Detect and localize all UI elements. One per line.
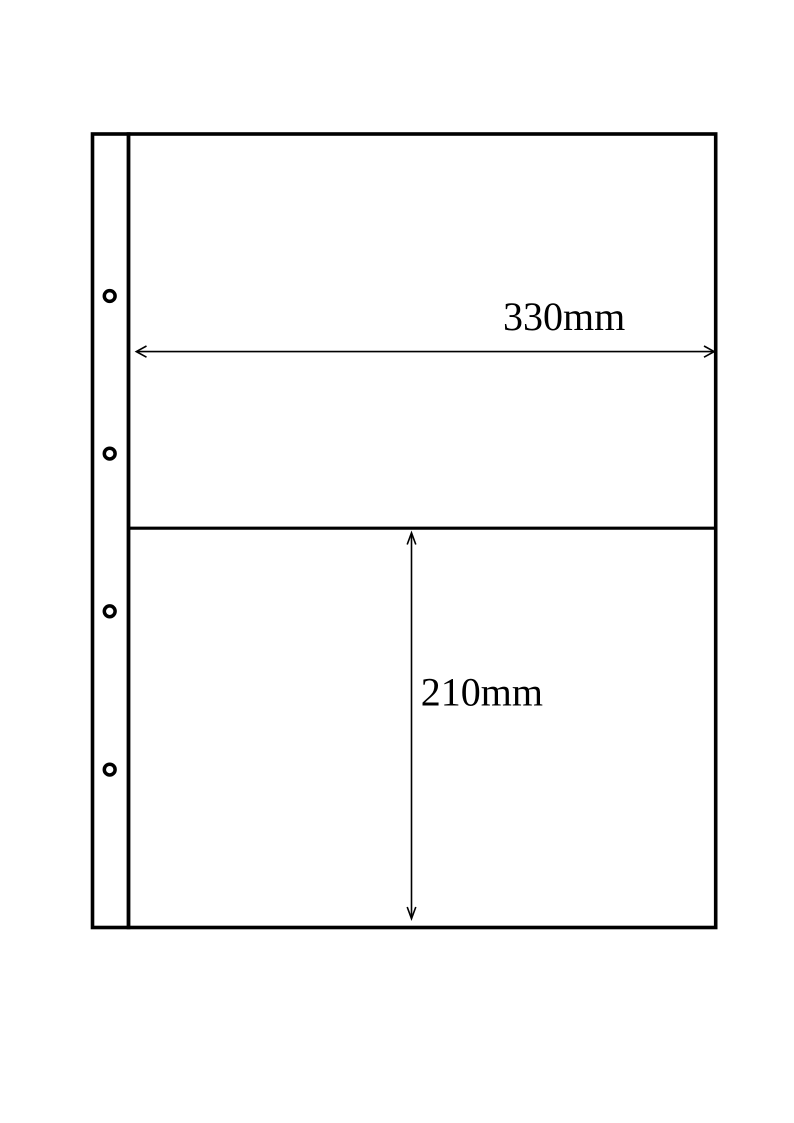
svg-text:210mm: 210mm bbox=[421, 670, 543, 715]
svg-text:330mm: 330mm bbox=[503, 294, 625, 339]
